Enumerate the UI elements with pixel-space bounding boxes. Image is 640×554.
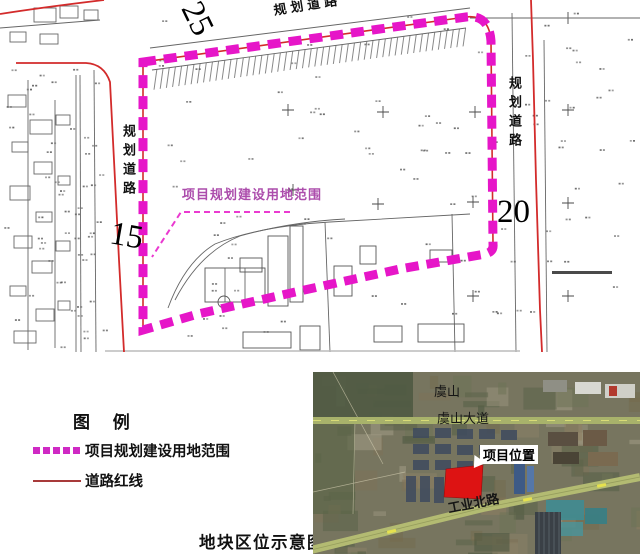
redline-swatch-icon <box>33 480 81 482</box>
ribbed-factory <box>535 512 561 554</box>
top-road-and-slope-hatch <box>150 8 640 352</box>
dimension-15: 15 <box>107 215 146 257</box>
road-label-right: 规划道路 <box>505 76 524 152</box>
road-label-left: 规划道路 <box>119 124 138 200</box>
legend-item-label: 项目规划建设用地范围 <box>85 440 230 461</box>
boundary-note-leader <box>152 212 290 257</box>
site-plan-map: 规划道路 25 规划道路 15 规划道路 20 项目规划建设用地范围 <box>0 0 640 368</box>
boundary-note-label: 项目规划建设用地范围 <box>182 184 322 203</box>
legend-item-redline: 道路红线 <box>33 477 81 482</box>
legend-item-boundary: 项目规划建设用地范围 <box>33 447 83 454</box>
avenue-label: 虞山大道 <box>437 408 489 427</box>
figure-caption: 地块区位示意图 <box>199 529 325 553</box>
left-block-linework <box>0 6 100 352</box>
mountain-label: 虞山 <box>434 381 460 400</box>
satellite-inset-map: 虞山 虞山大道 项目位置 工业北路 <box>313 372 640 554</box>
scale-tick-bar <box>552 271 612 274</box>
dimension-20: 20 <box>497 194 530 231</box>
legend-item-label: 道路红线 <box>85 470 143 491</box>
slope-hachure-band <box>152 28 466 90</box>
page: 规划道路 25 规划道路 15 规划道路 20 项目规划建设用地范围 图 例 项… <box>0 0 640 554</box>
legend-title: 图 例 <box>73 408 139 433</box>
building-cluster <box>105 214 612 352</box>
project-location-label: 项目位置 <box>480 445 538 464</box>
boundary-swatch-icon <box>33 447 83 454</box>
